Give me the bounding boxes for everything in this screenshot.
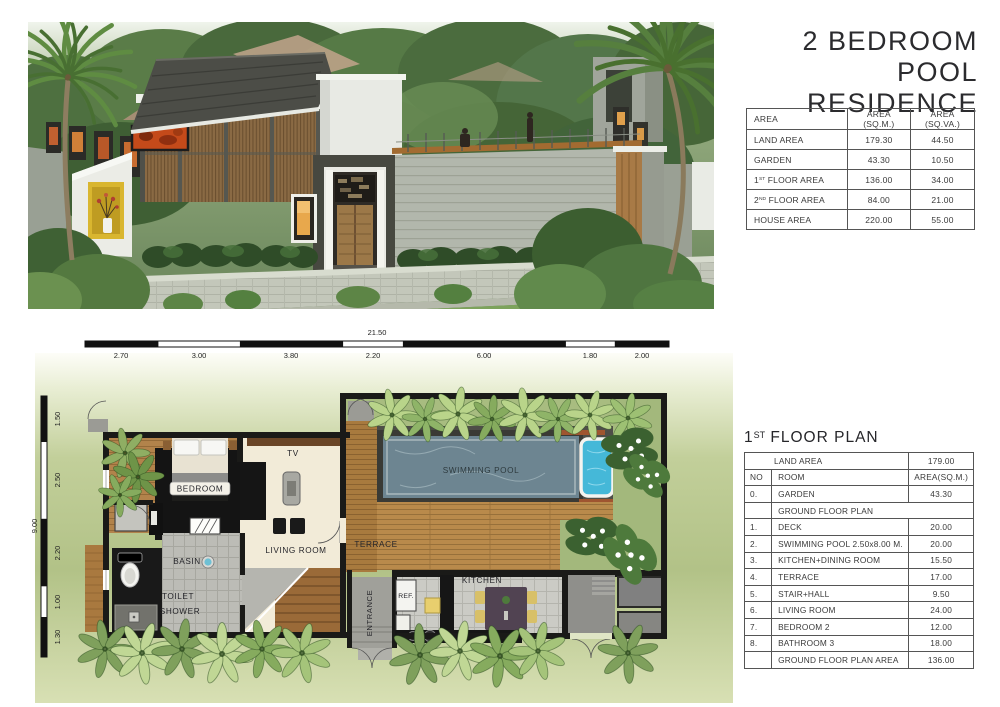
room-name-cell: ROOM xyxy=(772,469,909,486)
room-area-cell: 136.00 xyxy=(909,652,974,669)
tv-console xyxy=(247,438,340,446)
terrace-label: TERRACE xyxy=(354,540,397,549)
basin-fixture xyxy=(202,556,214,568)
room-no-cell: 7. xyxy=(745,618,772,635)
floor-plan-table-row: 7.BEDROOM 212.00 xyxy=(745,618,974,635)
room-no-cell: 5. xyxy=(745,585,772,602)
area-table-header-row: AREA AREA (SQ.M.) AREA (SQ.VA.) xyxy=(747,109,975,130)
room-area-cell: 20.00 xyxy=(909,519,974,536)
top-dim-1: 2.70 xyxy=(114,351,129,360)
kitchen-sink xyxy=(396,615,410,631)
page-title: 2 BEDROOM POOL RESIDENCE xyxy=(720,26,978,119)
armchair xyxy=(290,518,305,534)
page-title-line1: 2 BEDROOM xyxy=(720,26,978,57)
sqva-header-cell: AREA (SQ.VA.) xyxy=(911,109,975,130)
area-label-cell: GARDEN xyxy=(747,150,848,170)
area-sqva-cell: 55.00 xyxy=(911,210,975,230)
floor-plan-table: LAND AREA179.00NOROOMAREA(SQ.M.)0.GARDEN… xyxy=(744,452,974,669)
top-dim-2: 3.00 xyxy=(192,351,207,360)
ordinal-superscript: ST xyxy=(759,177,765,182)
left-dim-2: 2.50 xyxy=(53,473,62,488)
area-table-row: 1ST FLOOR AREA136.0034.00 xyxy=(747,170,975,190)
area-table-row: HOUSE AREA220.0055.00 xyxy=(747,210,975,230)
left-dim-5: 1.30 xyxy=(53,630,62,645)
area-label-cell: LAND AREA xyxy=(747,130,848,150)
floor-plan-table-row: 8.BATHROOM 318.00 xyxy=(745,635,974,652)
room-no-cell xyxy=(745,502,772,519)
shower-label: SHOWER xyxy=(160,607,200,616)
room-area-cell: 12.00 xyxy=(909,618,974,635)
floor-plan-table-row: 1.DECK20.00 xyxy=(745,519,974,536)
sqm-header-cell: AREA (SQ.M.) xyxy=(847,109,910,130)
bath-floor xyxy=(162,533,245,632)
stone-lattice xyxy=(335,175,375,202)
left-total-dimension: 9.00 xyxy=(30,519,39,534)
brochure-page: 2 BEDROOM POOL RESIDENCE AREA AREA (SQ.M… xyxy=(0,0,1000,707)
top-total-dimension: 21.50 xyxy=(368,328,387,337)
left-dim-4: 1.00 xyxy=(53,595,62,610)
area-table-row: LAND AREA179.3044.50 xyxy=(747,130,975,150)
floor-plan-title: 1ST FLOOR PLAN xyxy=(744,429,879,447)
room-area-cell: 20.00 xyxy=(909,535,974,552)
ordinal-superscript: ND xyxy=(759,197,766,202)
top-dim-4: 2.20 xyxy=(366,351,381,360)
area-sqm-cell: 136.00 xyxy=(847,170,910,190)
area-sqm-cell: 84.00 xyxy=(847,190,910,210)
floor-plan-drawing: 21.50 2.70 3.00 3.80 2.20 6.00 1.80 2.00… xyxy=(30,315,735,707)
area-sqm-cell: 43.30 xyxy=(847,150,910,170)
floor-plan-table-row: 2.SWIMMING POOL 2.50x8.00 M.20.00 xyxy=(745,535,974,552)
room-no-cell: 1. xyxy=(745,519,772,536)
armchair xyxy=(273,518,286,534)
top-dim-3: 3.80 xyxy=(284,351,299,360)
land-area-cell: LAND AREA xyxy=(745,453,909,470)
floor-plan-table-row: 4.TERRACE17.00 xyxy=(745,569,974,586)
floor-plan-title-num: 1 xyxy=(744,429,754,446)
section-label-cell: GROUND FLOOR PLAN xyxy=(772,502,974,519)
villa-photo-rendering xyxy=(28,22,714,309)
floor-plan-table-row: NOROOMAREA(SQ.M.) xyxy=(745,469,974,486)
floor-plan-table-row: GROUND FLOOR PLAN AREA136.00 xyxy=(745,652,974,669)
room-area-cell: AREA(SQ.M.) xyxy=(909,469,974,486)
kitchen-island-box xyxy=(425,598,440,613)
living-room-label: LIVING ROOM xyxy=(265,546,326,555)
room-name-cell: GROUND FLOOR PLAN AREA xyxy=(772,652,909,669)
land-area-value-cell: 179.00 xyxy=(909,453,974,470)
area-label-cell: 2ND FLOOR AREA xyxy=(747,190,848,210)
room-name-cell: DECK xyxy=(772,519,909,536)
room-no-cell: NO xyxy=(745,469,772,486)
room-name-cell: LIVING ROOM xyxy=(772,602,909,619)
room-area-cell: 17.00 xyxy=(909,569,974,586)
garden-gate-pad xyxy=(88,419,108,432)
area-label-cell: 1ST FLOOR AREA xyxy=(747,170,848,190)
room-name-cell: TERRACE xyxy=(772,569,909,586)
floor-plan-table-row: 3.KITCHEN+DINING ROOM15.50 xyxy=(745,552,974,569)
room-area-cell: 9.50 xyxy=(909,585,974,602)
room-no-cell: 0. xyxy=(745,486,772,503)
top-dim-7: 2.00 xyxy=(635,351,650,360)
swimming-pool-label: SWIMMING POOL xyxy=(443,466,520,475)
top-dim-5: 6.00 xyxy=(477,351,492,360)
room-area-cell: 24.00 xyxy=(909,602,974,619)
bedroom-label: BEDROOM xyxy=(177,485,224,494)
area-sqm-cell: 179.30 xyxy=(847,130,910,150)
area-sqm-cell: 220.00 xyxy=(847,210,910,230)
area-label-cell: HOUSE AREA xyxy=(747,210,848,230)
room-no-cell: 2. xyxy=(745,535,772,552)
white-roofdeck-box xyxy=(316,74,406,159)
room-area-cell: 43.30 xyxy=(909,486,974,503)
room-no-cell: 8. xyxy=(745,635,772,652)
basin-label: BASIN xyxy=(173,557,201,566)
area-summary-table: AREA AREA (SQ.M.) AREA (SQ.VA.) LAND ARE… xyxy=(746,108,975,230)
left-dim-3: 2.20 xyxy=(53,546,62,561)
room-area-cell: 15.50 xyxy=(909,552,974,569)
ref-label: REF. xyxy=(398,593,414,600)
lit-window xyxy=(291,194,317,243)
area-table-row: 2ND FLOOR AREA84.0021.00 xyxy=(747,190,975,210)
room-no-cell xyxy=(745,652,772,669)
entrance-label: ENTRANCE xyxy=(365,590,374,637)
floor-plan-table-row: 0.GARDEN43.30 xyxy=(745,486,974,503)
top-dim-6: 1.80 xyxy=(583,351,598,360)
room-name-cell: SWIMMING POOL 2.50x8.00 M. xyxy=(772,535,909,552)
kitchen-label: KITCHEN xyxy=(462,576,502,585)
room-no-cell: 6. xyxy=(745,602,772,619)
floor-plan-table-row: GROUND FLOOR PLAN xyxy=(745,502,974,519)
room-name-cell: STAIR+HALL xyxy=(772,585,909,602)
floor-plan-table-row: 5.STAIR+HALL9.50 xyxy=(745,585,974,602)
louver-closet xyxy=(190,518,220,534)
room-name-cell: KITCHEN+DINING ROOM xyxy=(772,552,909,569)
area-sqva-cell: 21.00 xyxy=(911,190,975,210)
room-no-cell: 3. xyxy=(745,552,772,569)
room-area-cell: 18.00 xyxy=(909,635,974,652)
area-header-cell: AREA xyxy=(747,109,848,130)
tv-label: TV xyxy=(287,449,299,458)
toilet-label: TOILET xyxy=(162,592,194,601)
area-table-row: GARDEN43.3010.50 xyxy=(747,150,975,170)
room-name-cell: GARDEN xyxy=(772,486,909,503)
floor-plan-table-row: LAND AREA179.00 xyxy=(745,453,974,470)
terrace-floor xyxy=(345,421,377,572)
area-sqva-cell: 10.50 xyxy=(911,150,975,170)
room-name-cell: BEDROOM 2 xyxy=(772,618,909,635)
wooden-doors xyxy=(337,205,373,265)
counter-vertical xyxy=(440,575,454,631)
sofa xyxy=(240,462,266,520)
area-sqva-cell: 34.00 xyxy=(911,170,975,190)
far-right-wall xyxy=(692,162,714,230)
room-name-cell: BATHROOM 3 xyxy=(772,635,909,652)
area-sqva-cell: 44.50 xyxy=(911,130,975,150)
room-no-cell: 4. xyxy=(745,569,772,586)
floor-plan-table-row: 6.LIVING ROOM24.00 xyxy=(745,602,974,619)
floor-plan-title-rest: FLOOR PLAN xyxy=(765,429,879,446)
left-dim-1: 1.50 xyxy=(53,412,62,427)
floor-plan-title-sup: ST xyxy=(754,430,765,440)
